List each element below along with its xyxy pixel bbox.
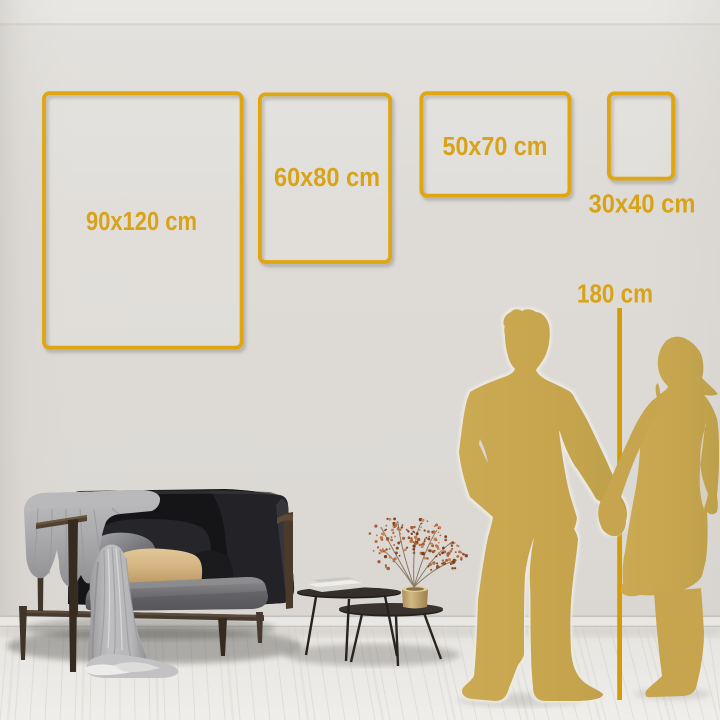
svg-text:60x80 cm: 60x80 cm (274, 164, 380, 192)
svg-text:90x120 cm: 90x120 cm (86, 208, 197, 236)
svg-text:50x70 cm: 50x70 cm (443, 133, 548, 161)
svg-text:180 cm: 180 cm (577, 281, 653, 309)
svg-text:30x40 cm: 30x40 cm (589, 191, 696, 219)
